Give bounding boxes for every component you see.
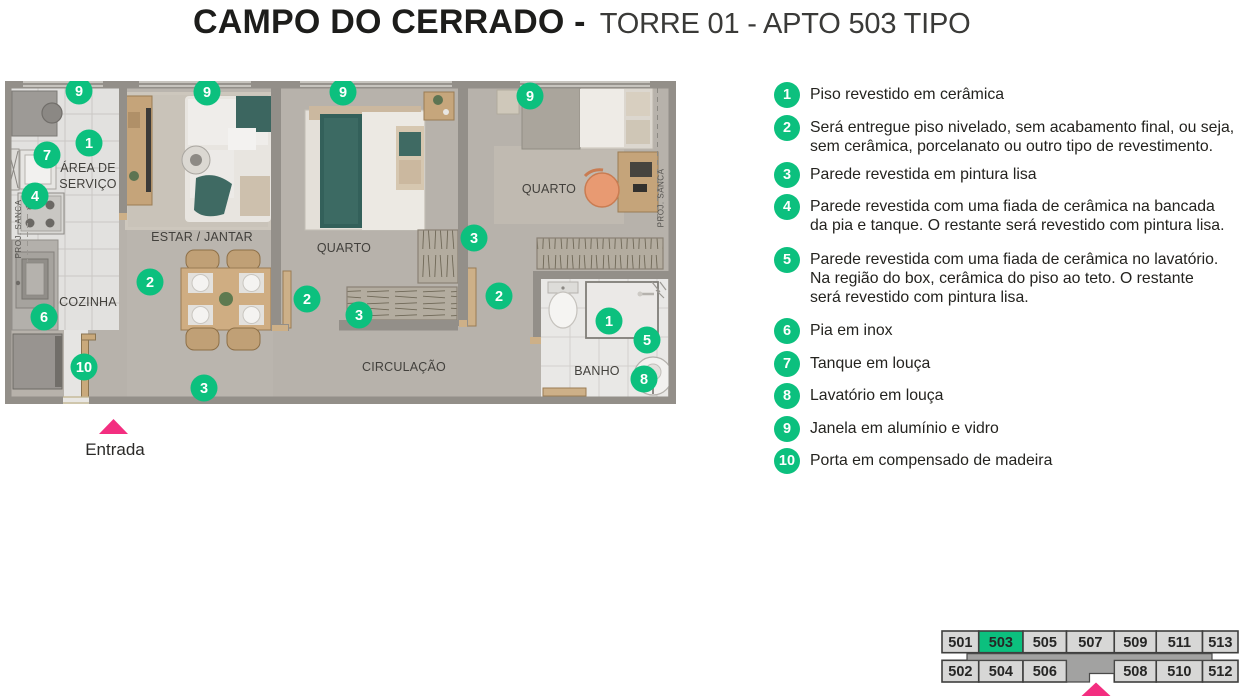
svg-text:2: 2 — [495, 289, 503, 305]
svg-text:COZINHA: COZINHA — [59, 295, 117, 309]
svg-text:1: 1 — [605, 314, 613, 330]
svg-text:ESTAR / JANTAR: ESTAR / JANTAR — [151, 230, 253, 244]
svg-text:509: 509 — [1123, 635, 1147, 651]
svg-text:6: 6 — [40, 310, 48, 326]
svg-text:505: 505 — [1033, 635, 1057, 651]
svg-text:503: 503 — [989, 635, 1013, 651]
svg-text:5: 5 — [643, 333, 651, 349]
svg-text:508: 508 — [1123, 664, 1147, 680]
svg-text:9: 9 — [339, 85, 347, 101]
svg-text:510: 510 — [1167, 664, 1191, 680]
svg-text:3: 3 — [470, 231, 478, 247]
svg-text:504: 504 — [989, 664, 1013, 680]
svg-text:506: 506 — [1033, 664, 1057, 680]
svg-text:501: 501 — [948, 635, 972, 651]
svg-text:1: 1 — [85, 136, 93, 152]
svg-text:BANHO: BANHO — [574, 364, 620, 378]
svg-text:CIRCULAÇÃO: CIRCULAÇÃO — [362, 360, 446, 374]
svg-text:511: 511 — [1168, 635, 1191, 651]
svg-text:512: 512 — [1208, 664, 1232, 680]
svg-text:2: 2 — [146, 275, 154, 291]
svg-text:9: 9 — [75, 84, 83, 100]
svg-text:8: 8 — [640, 372, 648, 388]
svg-text:10: 10 — [76, 360, 92, 376]
svg-text:QUARTO: QUARTO — [522, 182, 576, 196]
svg-text:3: 3 — [200, 381, 208, 397]
svg-text:513: 513 — [1208, 635, 1232, 651]
svg-text:SERVIÇO: SERVIÇO — [59, 177, 117, 191]
svg-text:PROJ. SANCA: PROJ. SANCA — [14, 199, 23, 258]
svg-text:3: 3 — [355, 308, 363, 324]
svg-text:2: 2 — [303, 292, 311, 308]
svg-text:ÁREA DE: ÁREA DE — [60, 160, 116, 175]
svg-text:7: 7 — [43, 148, 51, 164]
svg-text:QUARTO: QUARTO — [317, 241, 371, 255]
svg-text:502: 502 — [948, 664, 972, 680]
svg-text:9: 9 — [526, 89, 534, 105]
svg-text:4: 4 — [31, 189, 39, 205]
svg-text:507: 507 — [1078, 635, 1102, 651]
svg-text:9: 9 — [203, 85, 211, 101]
svg-text:PROJ. SANCA: PROJ. SANCA — [657, 168, 666, 227]
